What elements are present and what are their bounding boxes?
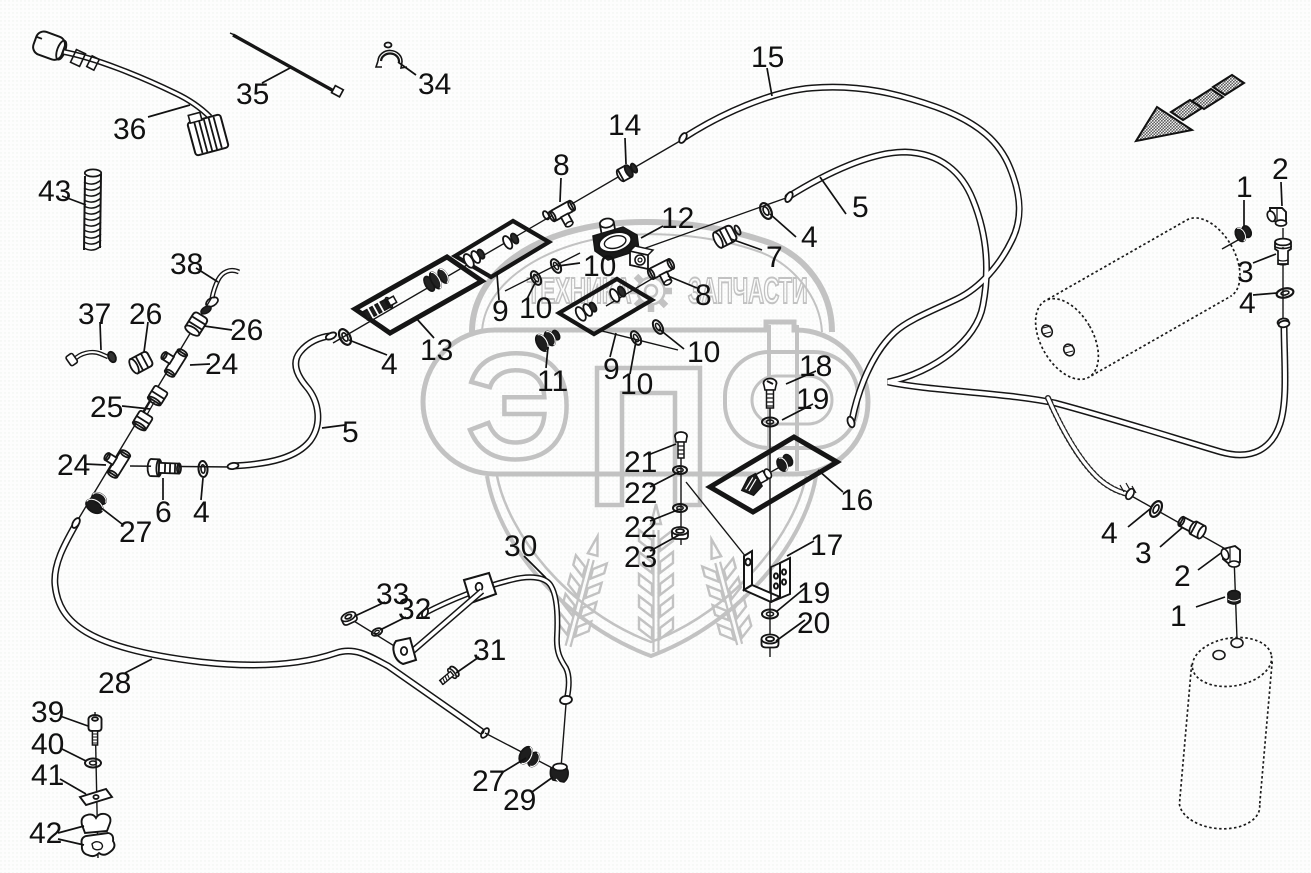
svg-text:34: 34 bbox=[418, 68, 451, 101]
svg-text:29: 29 bbox=[503, 784, 536, 817]
svg-text:4: 4 bbox=[1239, 287, 1256, 320]
svg-text:8: 8 bbox=[695, 279, 712, 312]
svg-text:13: 13 bbox=[420, 334, 453, 367]
svg-text:8: 8 bbox=[553, 149, 570, 182]
svg-text:31: 31 bbox=[473, 634, 506, 667]
svg-text:4: 4 bbox=[1101, 517, 1118, 550]
svg-text:14: 14 bbox=[608, 109, 641, 142]
svg-text:38: 38 bbox=[170, 248, 203, 281]
svg-text:1: 1 bbox=[1170, 600, 1187, 633]
svg-text:23: 23 bbox=[624, 541, 657, 574]
svg-text:3: 3 bbox=[1237, 256, 1254, 289]
svg-text:43: 43 bbox=[38, 175, 71, 208]
svg-text:24: 24 bbox=[57, 449, 90, 482]
svg-text:22: 22 bbox=[624, 511, 657, 544]
svg-text:2: 2 bbox=[1174, 560, 1191, 593]
svg-text:15: 15 bbox=[751, 41, 784, 74]
svg-text:40: 40 bbox=[31, 728, 64, 761]
svg-text:9: 9 bbox=[603, 353, 620, 386]
svg-text:24: 24 bbox=[205, 348, 238, 381]
svg-text:4: 4 bbox=[381, 348, 398, 381]
svg-text:18: 18 bbox=[799, 350, 832, 383]
svg-text:5: 5 bbox=[852, 191, 869, 224]
svg-text:3: 3 bbox=[1135, 537, 1152, 570]
svg-text:21: 21 bbox=[624, 446, 657, 479]
svg-text:26: 26 bbox=[129, 298, 162, 331]
svg-text:41: 41 bbox=[31, 759, 64, 792]
svg-text:10: 10 bbox=[687, 336, 720, 369]
svg-text:10: 10 bbox=[620, 368, 653, 401]
svg-text:16: 16 bbox=[840, 484, 873, 517]
svg-text:7: 7 bbox=[766, 241, 783, 274]
svg-text:11: 11 bbox=[537, 365, 568, 398]
svg-text:27: 27 bbox=[119, 516, 152, 549]
svg-text:36: 36 bbox=[113, 113, 146, 146]
svg-text:6: 6 bbox=[155, 496, 172, 529]
svg-text:4: 4 bbox=[801, 221, 818, 254]
svg-text:30: 30 bbox=[504, 530, 537, 563]
svg-text:28: 28 bbox=[98, 667, 131, 700]
svg-text:12: 12 bbox=[661, 202, 694, 235]
svg-text:2: 2 bbox=[1272, 153, 1289, 186]
svg-text:39: 39 bbox=[31, 696, 64, 729]
svg-text:27: 27 bbox=[472, 765, 505, 798]
svg-text:37: 37 bbox=[78, 298, 111, 331]
svg-text:Э: Э bbox=[466, 322, 573, 490]
svg-text:17: 17 bbox=[810, 529, 843, 562]
svg-text:22: 22 bbox=[624, 477, 657, 510]
svg-text:20: 20 bbox=[797, 607, 830, 640]
svg-text:35: 35 bbox=[236, 78, 269, 111]
svg-text:19: 19 bbox=[796, 383, 829, 416]
svg-text:10: 10 bbox=[519, 292, 552, 325]
svg-text:4: 4 bbox=[193, 496, 210, 529]
svg-text:9: 9 bbox=[492, 295, 509, 328]
svg-text:5: 5 bbox=[342, 416, 359, 449]
svg-text:10: 10 bbox=[583, 250, 616, 283]
svg-text:32: 32 bbox=[398, 593, 431, 626]
svg-text:42: 42 bbox=[29, 817, 62, 850]
svg-text:1: 1 bbox=[1236, 171, 1253, 204]
svg-text:25: 25 bbox=[90, 391, 123, 424]
svg-text:26: 26 bbox=[230, 314, 263, 347]
svg-text:19: 19 bbox=[797, 577, 830, 610]
